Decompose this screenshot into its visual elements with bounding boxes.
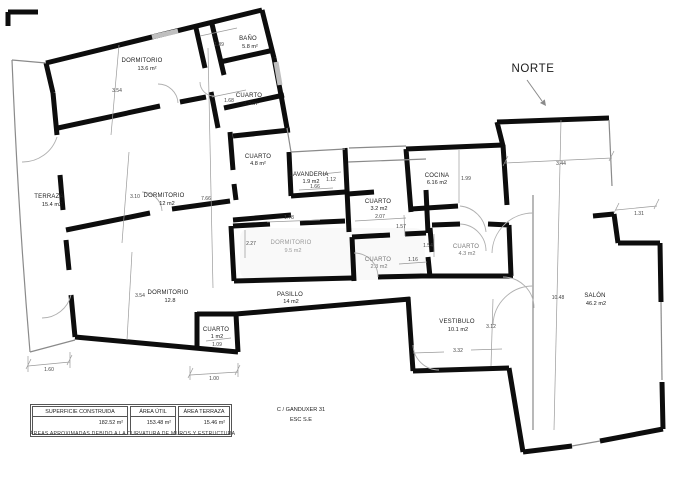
room-area-salon: 46.2 m2 (586, 301, 606, 307)
dim-131: 1.31 (634, 211, 644, 217)
room-area-cuarto-32: 3.2 m2 (370, 206, 387, 212)
north-arrow-line (527, 80, 542, 101)
room-label-cocina: COCINA (425, 173, 450, 179)
room-area-cuarto-1: 1 m2 (211, 334, 223, 340)
dim-189: 1.89 (214, 42, 224, 48)
room-area-dormitorio-128: 12.8 (165, 298, 176, 304)
room-label-dormitorio-128: DORMITORIO (148, 290, 189, 296)
dim-166: 1.66 (310, 184, 320, 190)
column-value: 182.52 m² (33, 417, 127, 426)
dim-154: 1.54 (423, 243, 433, 249)
room-label-dormitorio-136: DORMITORIO (122, 58, 163, 64)
room-area-cuarto-23: 2.3 m2 (370, 264, 387, 270)
column-header: ÁREA TERRAZA (179, 407, 229, 417)
dim-160: 1.60 (44, 367, 54, 373)
room-label-dormitorio-95: DORMITORIO (271, 240, 312, 246)
dim-112: 1.12 (326, 177, 336, 183)
room-area-cuarto-33: 3.3 m² (243, 101, 259, 107)
room-area-dormitorio-95: 9.5 m2 (284, 248, 301, 254)
address-block: C / GANDUXER 31 ESC S.E (255, 405, 347, 425)
dim-168: 1.68 (224, 98, 234, 104)
floor-plan-page: NORTE DORMITORIO 13.6 m² BAÑO 5.8 m² CUA… (0, 0, 678, 480)
room-area-cuarto-48: 4.8 m² (250, 161, 266, 167)
column-value: 153.48 m² (131, 417, 175, 426)
dim-1048: 10.48 (552, 295, 565, 301)
north-indicator: NORTE (511, 63, 554, 106)
room-label-cuarto-1: CUARTO (203, 327, 229, 333)
room-area-pasillo: 14 m2 (283, 299, 299, 305)
room-label-terraza: TERRAZA (34, 194, 63, 200)
room-label-salon: SALÓN (584, 292, 605, 299)
room-area-cocina: 6.16 m2 (427, 180, 447, 186)
room-area-terraza: 15.4 m2 (42, 202, 62, 208)
dimension-labels: 3.54 1.89 1.68 3.10 7.66 3.54 1.09 1.60 … (44, 42, 644, 382)
room-label-lavanderia: LAVANDERIA (289, 172, 328, 178)
dim-207: 2.07 (375, 214, 385, 220)
room-label-cuarto-43: CUARTO (453, 244, 479, 250)
room-label-vestibulo: VESTIBULO (439, 319, 475, 325)
dim-354-bottom: 3.54 (135, 293, 145, 299)
room-label-cuarto-48: CUARTO (245, 154, 271, 160)
dim-100: 1.00 (209, 376, 219, 382)
north-arrow-head (540, 99, 546, 106)
column-header: ÁREA ÚTIL (131, 407, 175, 417)
dim-310: 3.10 (130, 194, 140, 200)
dim-344: 3.44 (556, 161, 566, 167)
room-label-pasillo: PASILLO (277, 292, 303, 298)
dim-312: 3.12 (486, 324, 496, 330)
room-label-bano: BAÑO (239, 35, 257, 42)
north-label: NORTE (511, 63, 554, 75)
room-area-vestibulo: 10.1 m2 (448, 327, 468, 333)
footnote: ÁREAS APROXIMADAS DEBIDO A LA CURVATURA … (30, 431, 235, 437)
room-label-cuarto-32: CUARTO (365, 199, 391, 205)
room-area-dormitorio-12: 12 m2 (159, 201, 175, 207)
address-line: C / GANDUXER 31 (255, 405, 347, 415)
room-labels: DORMITORIO 13.6 m² BAÑO 5.8 m² CUARTO 3.… (34, 35, 606, 340)
dim-199: 1.99 (461, 176, 471, 182)
dim-178: 1.78 (284, 215, 294, 221)
scale-line: ESC S.E (255, 415, 347, 425)
dim-766: 7.66 (201, 196, 211, 202)
dim-116: 1.16 (408, 257, 418, 263)
room-area-bano: 5.8 m² (242, 44, 258, 50)
column-value: 15.46 m² (179, 417, 229, 426)
column-header: SUPERFICIE CONSTRUIDA (33, 407, 127, 417)
dim-227: 2.27 (246, 241, 256, 247)
dim-109: 1.09 (212, 342, 222, 348)
room-area-cuarto-43: 4.3 m2 (458, 251, 475, 257)
dim-157: 1.57 (396, 224, 406, 230)
room-label-cuarto-23: CUARTO (365, 257, 391, 263)
dim-332: 3.32 (453, 348, 463, 354)
room-label-dormitorio-12: DORMITORIO (144, 193, 185, 199)
room-area-dormitorio-136: 13.6 m² (138, 66, 157, 72)
corner-ticks (8, 12, 38, 26)
dim-354-top: 3.54 (112, 88, 122, 94)
watermark (240, 228, 425, 280)
room-label-cuarto-33: CUARTO (236, 93, 262, 99)
